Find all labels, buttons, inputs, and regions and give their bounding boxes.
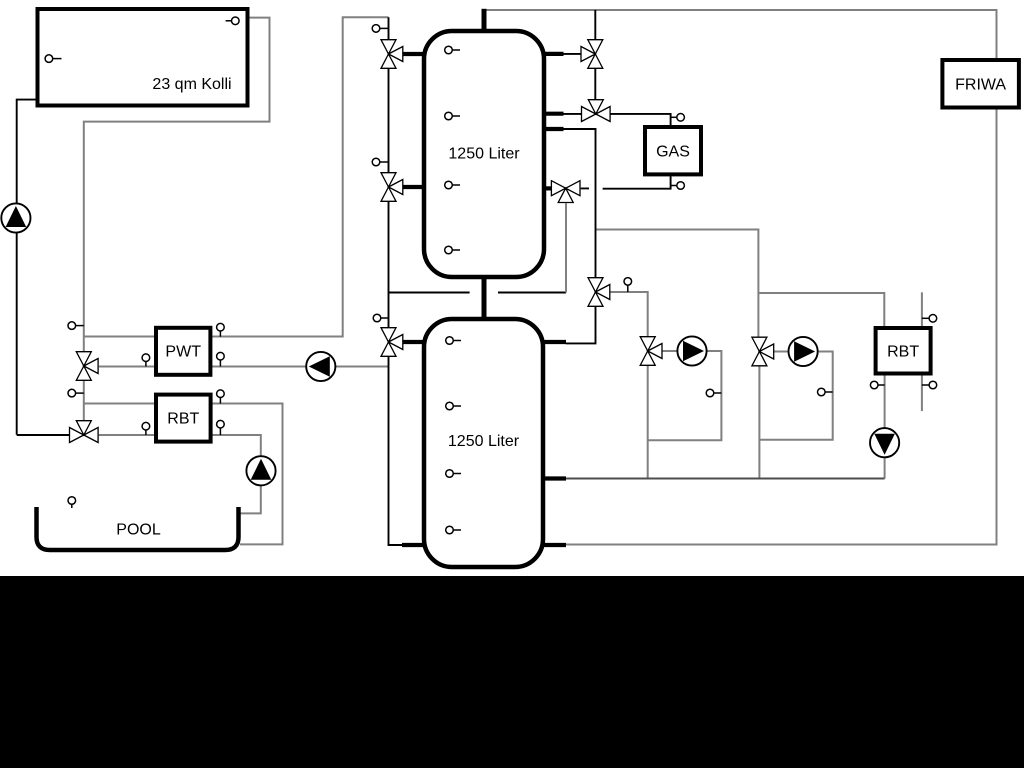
svg-text:FRIWA: FRIWA bbox=[955, 77, 1006, 94]
svg-text:GAS: GAS bbox=[656, 144, 690, 161]
svg-text:POOL: POOL bbox=[116, 522, 161, 539]
svg-text:1250 Liter: 1250 Liter bbox=[448, 433, 520, 450]
svg-text:RBT: RBT bbox=[167, 411, 199, 428]
svg-text:PWT: PWT bbox=[165, 344, 201, 361]
svg-text:1250 Liter: 1250 Liter bbox=[448, 146, 520, 163]
svg-text:23 qm Kolli: 23 qm Kolli bbox=[152, 76, 231, 93]
svg-text:RBT: RBT bbox=[887, 344, 919, 361]
